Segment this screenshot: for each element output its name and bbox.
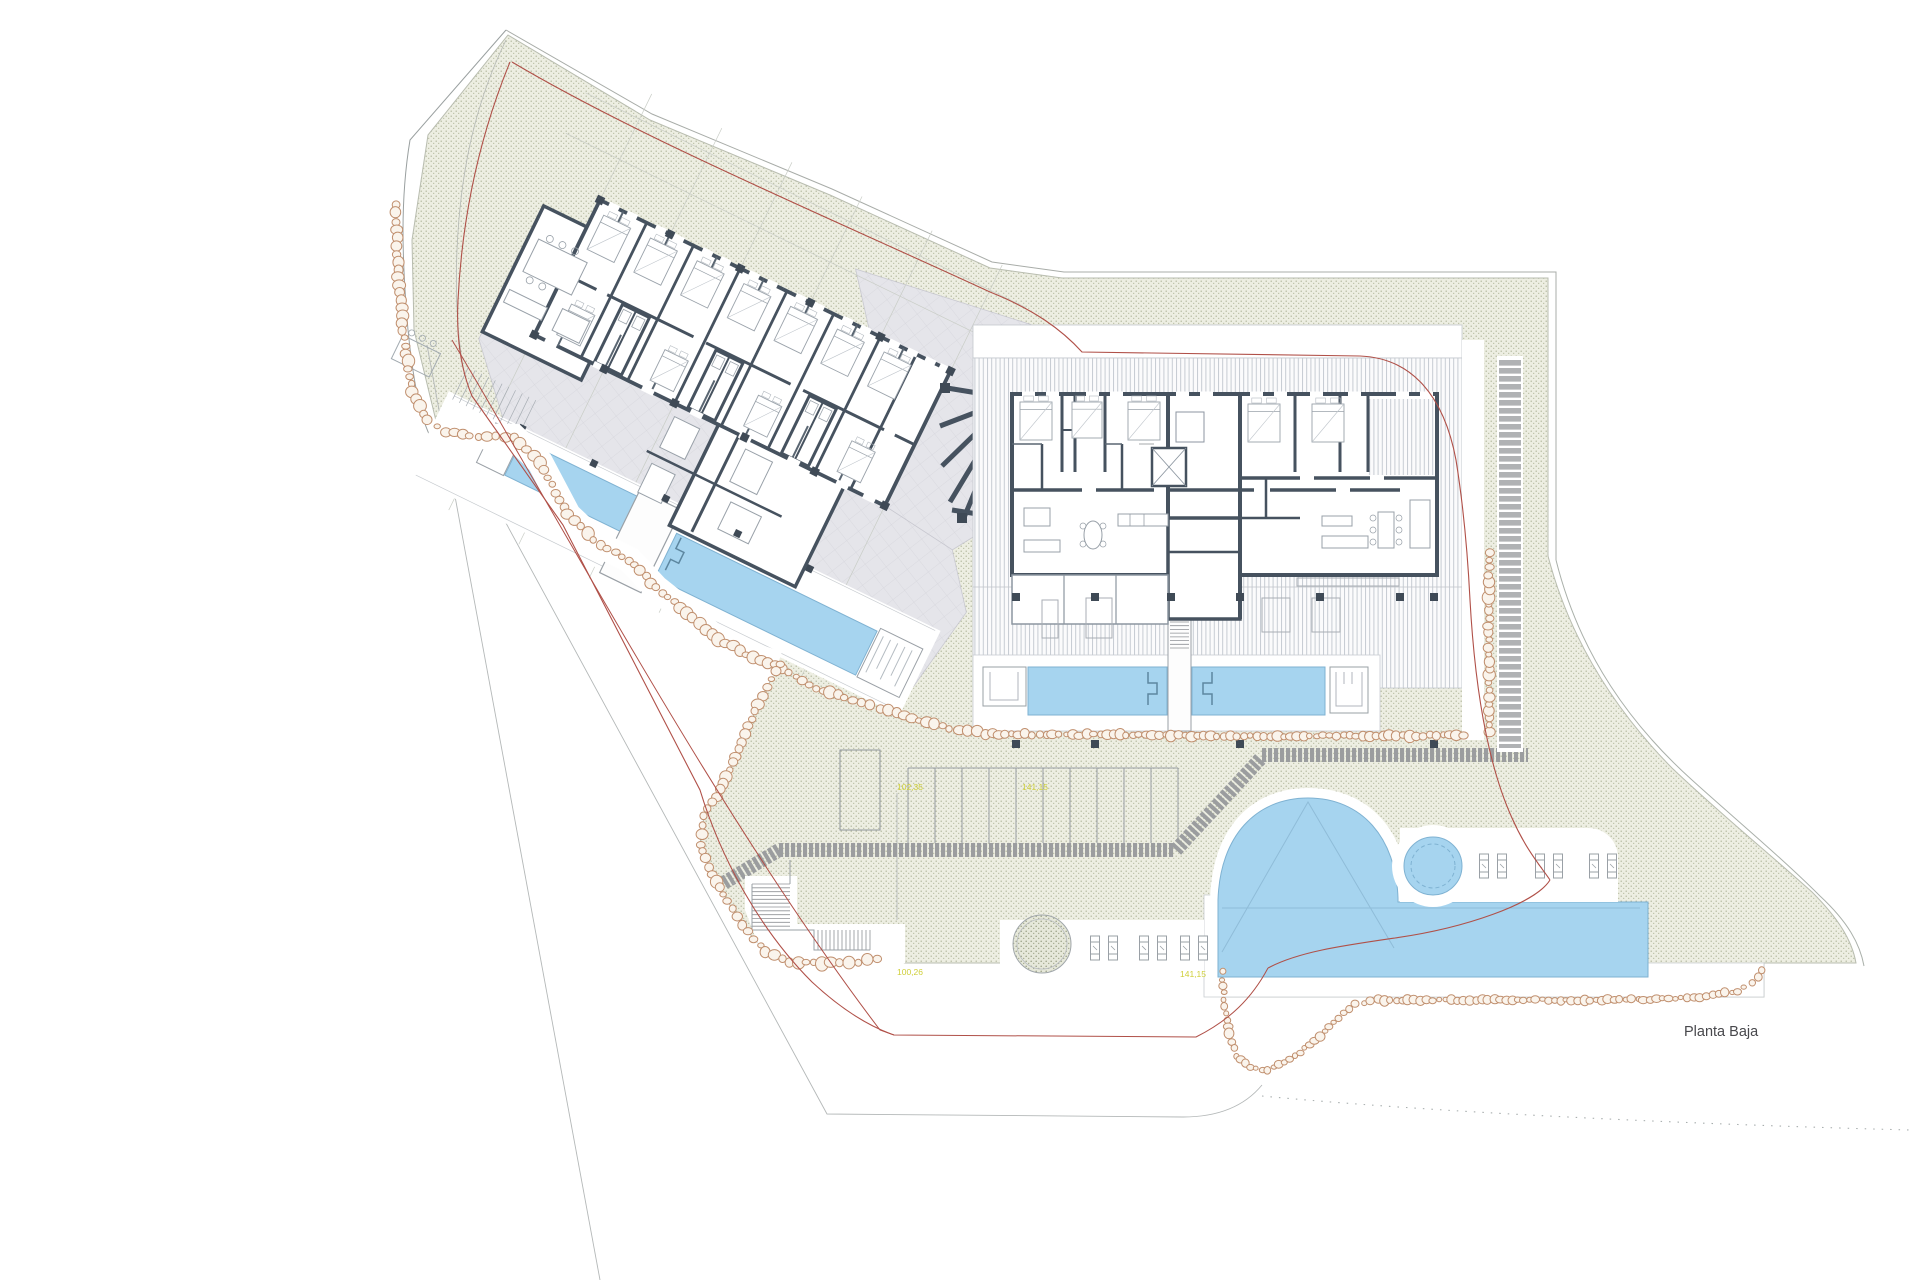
svg-text:141,15: 141,15: [1180, 969, 1206, 979]
svg-text:100,26: 100,26: [897, 967, 923, 977]
svg-text:141,15: 141,15: [1022, 782, 1048, 792]
svg-text:102,35: 102,35: [897, 782, 923, 792]
svg-text:Planta Baja: Planta Baja: [1684, 1024, 1759, 1040]
